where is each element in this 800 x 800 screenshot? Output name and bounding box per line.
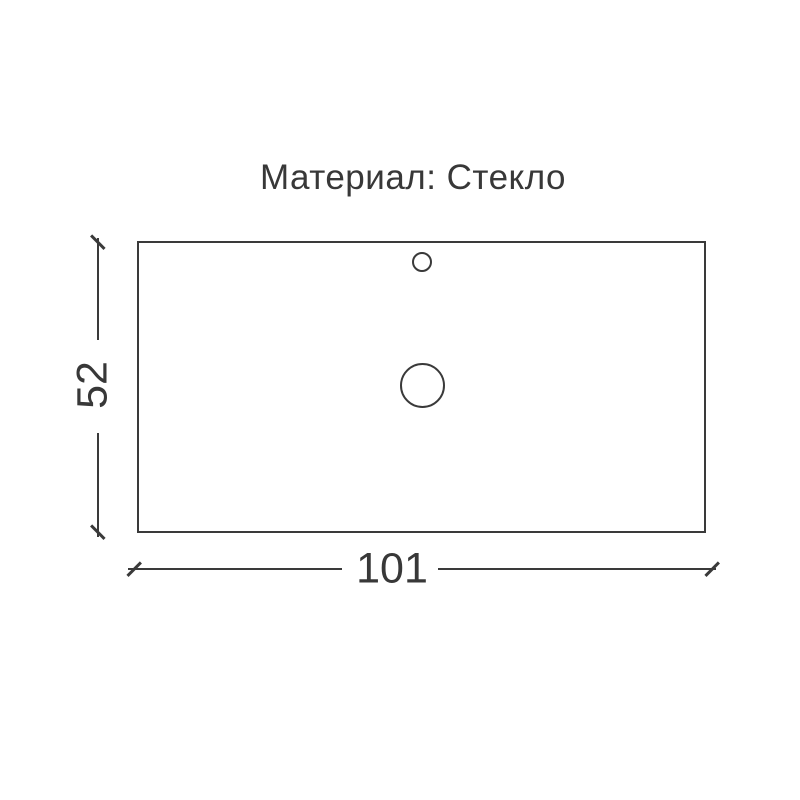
faucet-hole — [412, 252, 432, 272]
height-dim-line-lower — [97, 433, 99, 537]
material-title: Материал: Стекло — [260, 160, 566, 195]
height-dim-label: 52 — [72, 361, 115, 409]
width-dim-label: 101 — [356, 548, 428, 591]
height-dim-line-upper — [97, 238, 99, 340]
width-dim-line-left — [128, 568, 342, 570]
drain-hole — [400, 363, 445, 408]
width-dim-line-right — [438, 568, 716, 570]
technical-drawing: Материал: Стекло 52 101 — [0, 0, 800, 800]
